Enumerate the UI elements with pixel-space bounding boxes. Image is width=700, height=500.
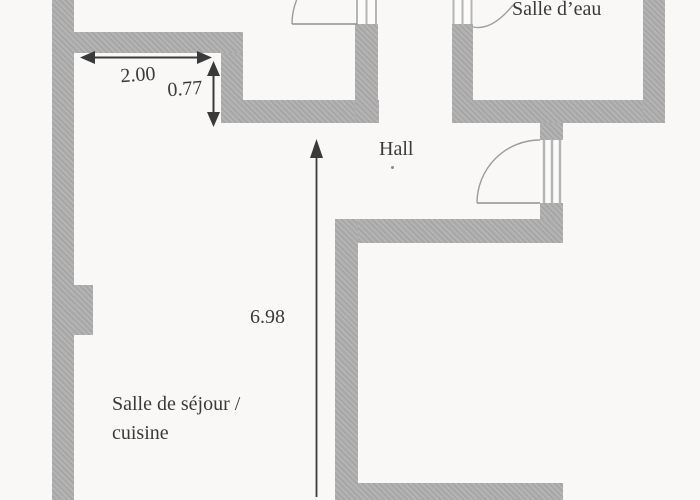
door-swing-hall-icon [477, 140, 540, 203]
wall-lower-room-left [335, 219, 358, 500]
dimension-label-top-width: 2.00 [109, 62, 166, 89]
wall-closet-right [355, 23, 378, 123]
leader-line-bathroom [473, 5, 513, 28]
wall-left [52, 0, 74, 500]
wall-bathroom-right [643, 0, 665, 123]
room-label-living-line2: cuisine [112, 419, 240, 448]
room-label-living: Salle de séjour / cuisine [112, 390, 240, 448]
scan-speck [391, 166, 394, 169]
wall-hall-door-top [540, 123, 563, 141]
dimension-label-top-offset: 0.77 [161, 76, 208, 102]
wall-bathroom-bottom [452, 100, 665, 123]
floor-plan: Salle d’eau Hall Salle de séjour / cuisi… [0, 0, 700, 500]
wall-lower-room-bottom [335, 483, 563, 500]
door-swing-closet-icon [292, 0, 357, 24]
room-label-bathroom: Salle d’eau [512, 0, 601, 24]
door-frame-bathroom [452, 0, 473, 24]
dimension-label-main-height: 6.98 [240, 306, 295, 329]
wall-left-pilaster [74, 285, 93, 335]
door-frame-hall [540, 140, 563, 203]
door-frame-closet [355, 0, 378, 24]
room-label-hall: Hall [379, 135, 413, 164]
wall-lower-room-top [335, 219, 563, 243]
wall-top-horizontal [52, 32, 243, 53]
dimension-arrow-top-offset [207, 61, 220, 127]
dimension-arrow-main-height [310, 139, 323, 497]
room-label-living-line1: Salle de séjour / [112, 390, 240, 419]
